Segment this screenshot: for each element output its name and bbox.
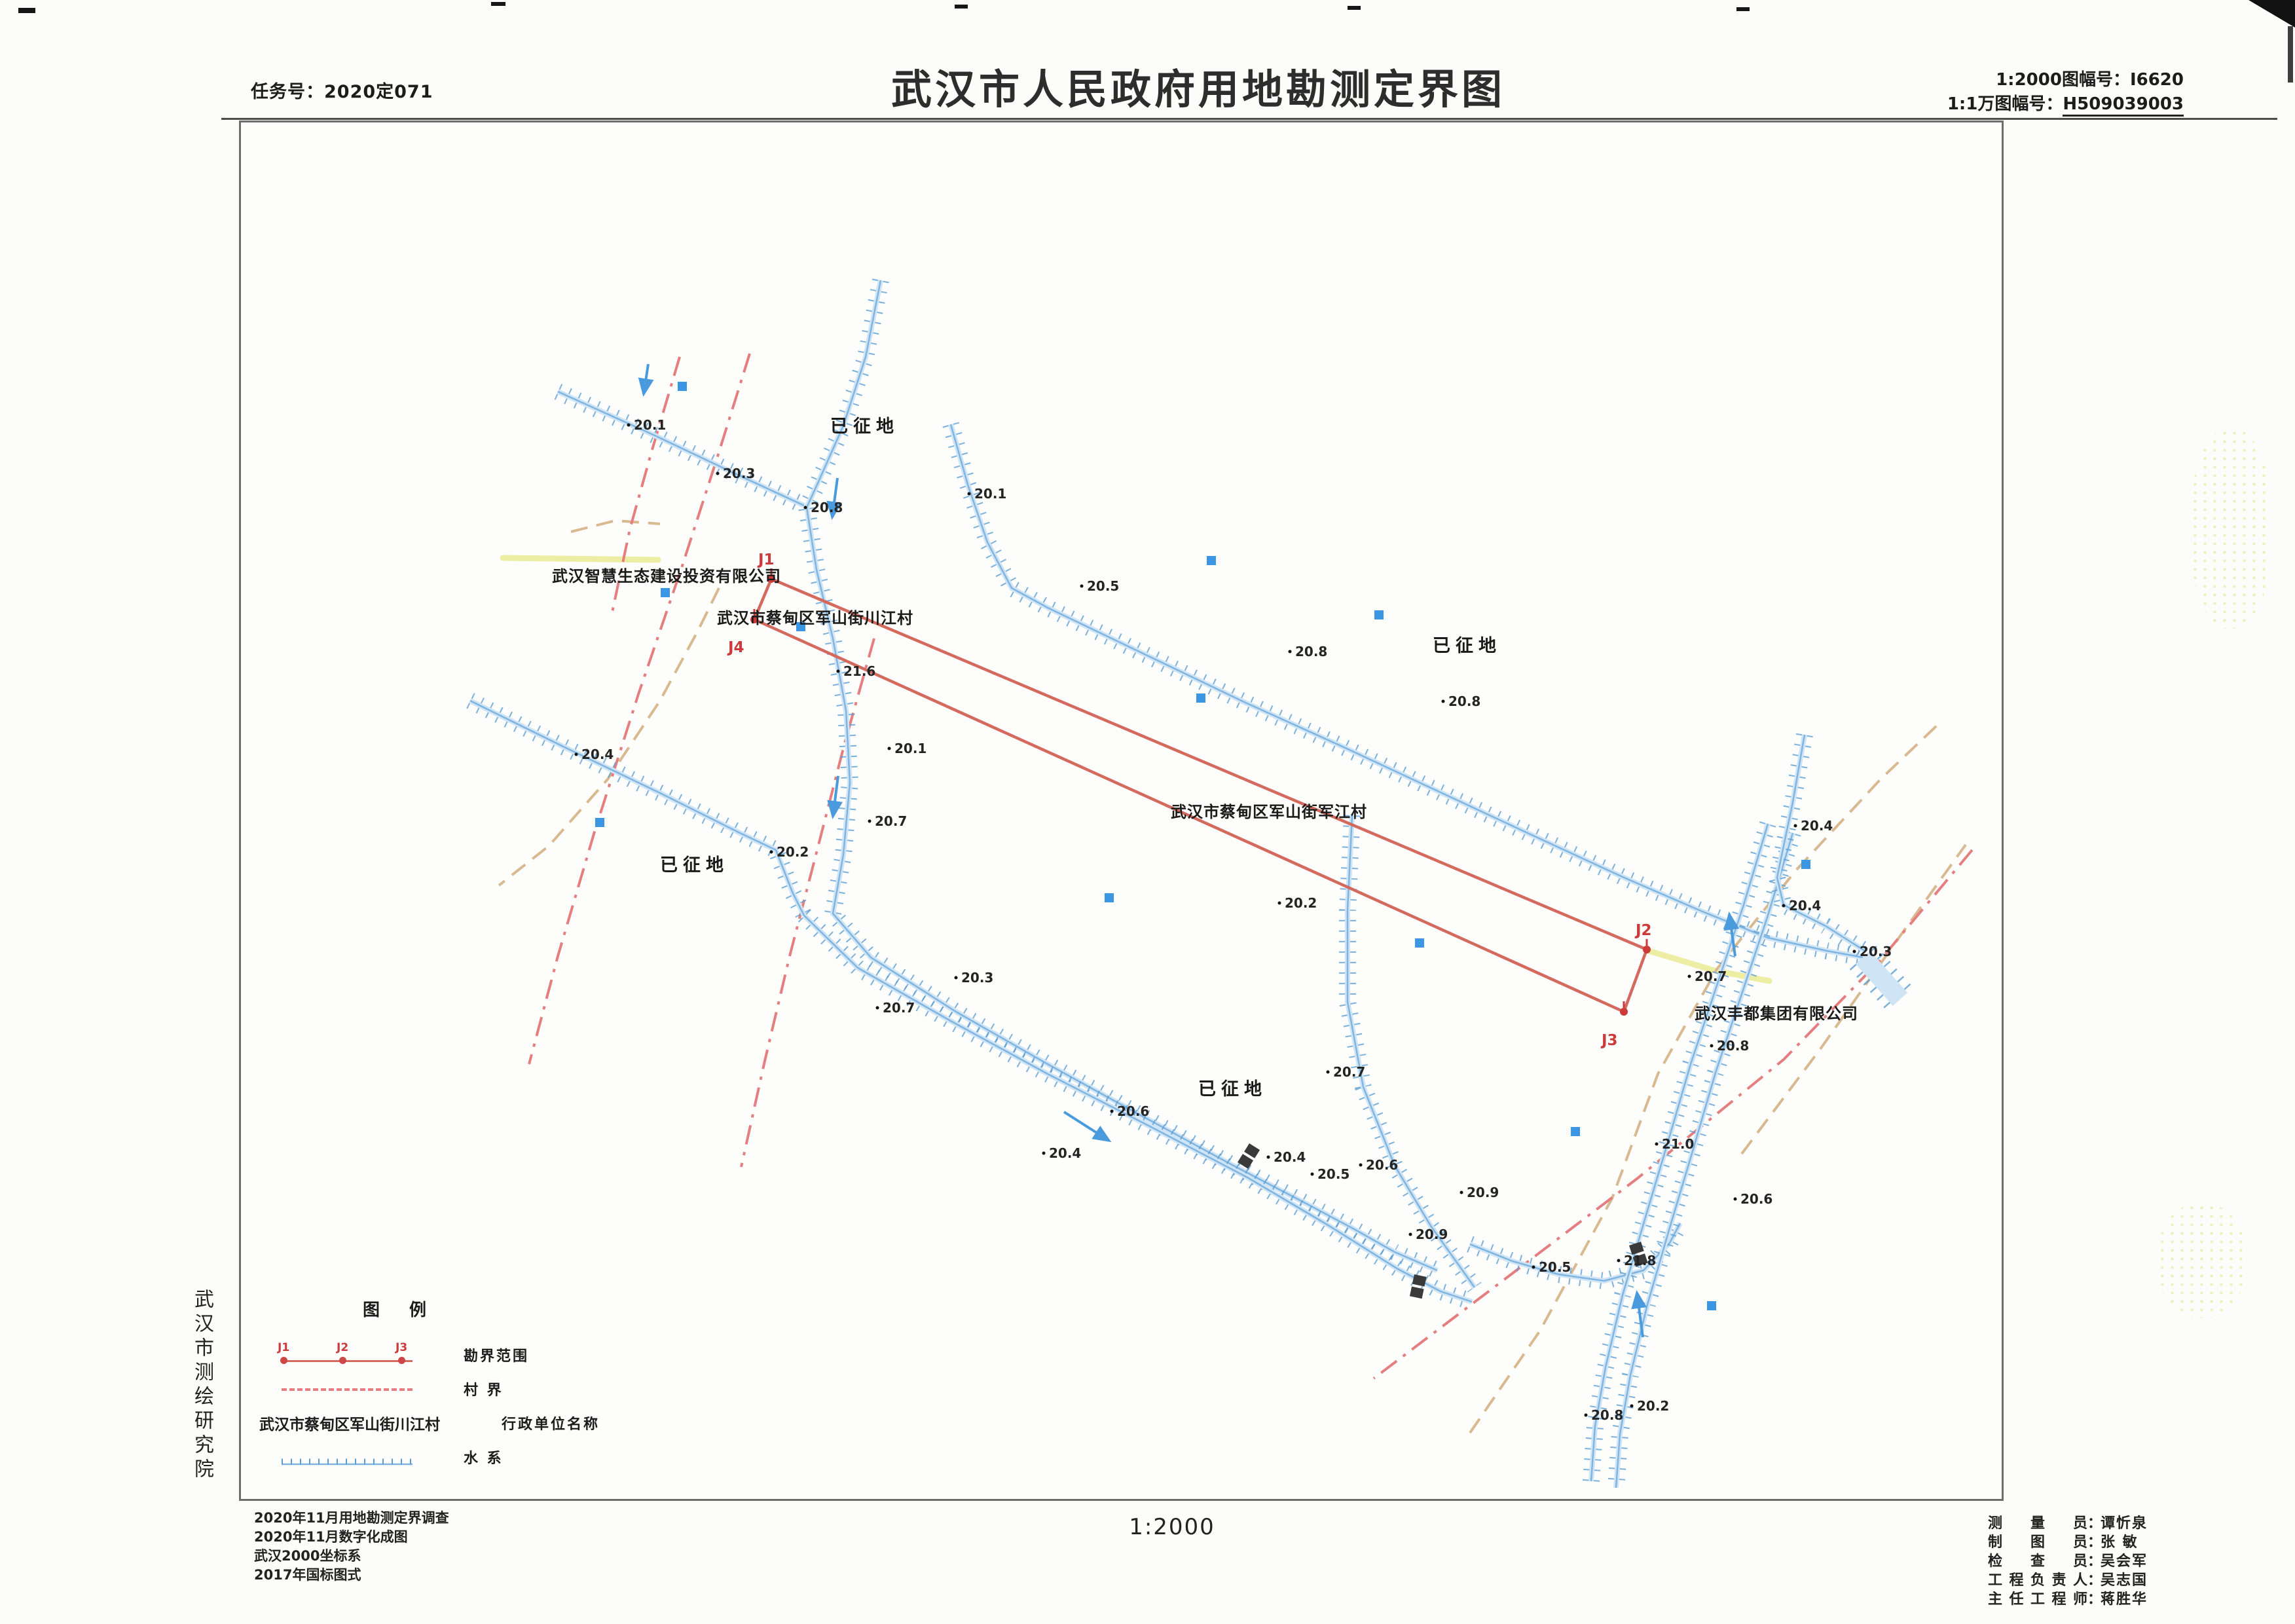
spot-elevation-dot [1460, 1191, 1463, 1194]
note-line: 武汉2000坐标系 [254, 1547, 449, 1566]
spot-elevation-label: 20.3 [961, 970, 993, 986]
spot-elevation-dot [1042, 1152, 1046, 1155]
spot-elevation-label: 20.5 [1087, 578, 1119, 594]
water-channel-line [1348, 815, 1475, 1287]
boundary-point-label: J1 [757, 551, 775, 568]
spot-elevation-label: 20.5 [1317, 1166, 1349, 1182]
spot-elevation-label: 20.2 [777, 844, 809, 860]
water-channel-ticks [951, 424, 1863, 957]
pond-square-icon [595, 818, 604, 827]
water-channel-core [807, 280, 1437, 1270]
spot-elevation-label: 20.4 [1049, 1145, 1081, 1161]
spot-elevation-label: 20.8 [1295, 644, 1327, 659]
survey-map-sheet: 任务号：2020定071 武汉市人民政府用地勘测定界图 1:2000图幅号：I6… [0, 0, 2295, 1624]
spot-elevation-dot [1359, 1164, 1363, 1167]
path-dashed-line [571, 521, 660, 532]
spot-elevation-label: 20.9 [1416, 1227, 1448, 1242]
spot-elevation-dot [1655, 1143, 1659, 1146]
legend-title: 图 例 [363, 1297, 600, 1321]
pond-square-icon [1707, 1301, 1716, 1310]
pond-square-icon [1415, 938, 1424, 948]
spot-elevation-label: 20.6 [1117, 1103, 1149, 1119]
spot-elevation-dot [1409, 1233, 1412, 1236]
pond-square-icon [1196, 693, 1205, 703]
spot-elevation-label: 20.1 [894, 741, 927, 756]
production-notes: 2020年11月用地勘测定界调查 2020年11月数字化成图 武汉2000坐标系… [254, 1509, 449, 1585]
pond-square-icon [1105, 893, 1114, 902]
spot-elevation-dot [1734, 1198, 1737, 1201]
spot-elevation-label: 21.8 [1624, 1253, 1656, 1268]
map-scale: 1:2000 [1129, 1514, 1215, 1540]
spot-elevation-dot [804, 506, 807, 509]
note-line: 2020年11月用地勘测定界调查 [254, 1509, 449, 1528]
spot-elevation-dot [1782, 904, 1786, 908]
survey-line-sample: J1 J2 J3 [259, 1340, 423, 1370]
spot-elevation-dot [1688, 975, 1691, 978]
spot-elevation-label: 20.5 [1539, 1259, 1571, 1275]
spot-elevation-dot [1327, 1071, 1330, 1074]
spot-elevation-label: 20.2 [1285, 895, 1317, 911]
spot-elevation-label: 20.7 [1695, 969, 1727, 984]
area-label: 已征地 [660, 855, 729, 876]
personnel-row: 检查员：吴会军 [1988, 1552, 2148, 1571]
boundary-point [1620, 1008, 1628, 1016]
spot-elevation-dot [1267, 1156, 1270, 1159]
spot-elevation-dot [770, 851, 773, 854]
spot-elevation-dot [1080, 585, 1084, 588]
name-label: 武汉市蔡甸区军山街川江村 [717, 609, 913, 627]
spot-elevation-dot [627, 424, 631, 427]
spot-elevation-label: 20.8 [1717, 1038, 1749, 1054]
pond-square-icon [1207, 556, 1216, 565]
legend-label-water: 水 系 [464, 1447, 504, 1467]
spot-elevation-label: 20.6 [1740, 1191, 1772, 1207]
personnel-row: 测量员：谭忻泉 [1988, 1514, 2148, 1533]
legend-row-admin: 武汉市蔡甸区军山街川江村 行政单位名称 [259, 1406, 600, 1440]
spot-elevation-dot [1794, 824, 1797, 828]
flow-arrow-icon [644, 364, 648, 394]
name-label: 武汉丰都集团有限公司 [1695, 1005, 1858, 1023]
agency-name: 武汉市测绘研究院 [187, 1289, 216, 1483]
water-channel-ticks [807, 280, 1437, 1270]
spot-elevation-label: 20.2 [1637, 1398, 1669, 1414]
spot-elevation-dot [888, 747, 891, 750]
spot-elevation-dot [1630, 1405, 1634, 1408]
path-dashed-line [499, 588, 719, 885]
personnel-row: 工程负责人：吴志国 [1988, 1571, 2148, 1590]
spot-elevation-label: 21.6 [843, 663, 875, 679]
spot-elevation-label: 20.4 [1274, 1149, 1306, 1165]
spot-elevation-label: 20.1 [974, 486, 1006, 502]
spot-elevation-label: 20.3 [723, 466, 755, 481]
legend: 图 例 J1 J2 J3 勘界范围 村 界 武汉市蔡甸区军山街川江村 行政单位名… [259, 1297, 600, 1474]
note-line: 2020年11月数字化成图 [254, 1528, 449, 1547]
spot-elevation-dot [1853, 950, 1856, 953]
spot-elevation-label: 21.0 [1662, 1136, 1694, 1152]
survey-line-icon [282, 1360, 413, 1362]
legend-j2-label: J2 [337, 1341, 348, 1354]
water-line-sample [259, 1442, 423, 1472]
survey-boundary-line [771, 579, 1647, 950]
spot-elevation-dot [1532, 1266, 1535, 1269]
boundary-point [1643, 946, 1651, 953]
spot-elevation-dot [876, 1006, 879, 1010]
spot-elevation-dot [868, 820, 872, 823]
pond-square-icon [661, 588, 670, 597]
water-line-icon [282, 1456, 413, 1468]
personnel-block: 测量员：谭忻泉 制图员：张 敏 检查员：吴会军 工程负责人：吴志国 主任工程师：… [1988, 1514, 2148, 1609]
admin-unit-sample: 武汉市蔡甸区军山街川江村 [259, 1412, 494, 1434]
flow-arrow-icon [833, 776, 838, 817]
village-boundary-icon [282, 1388, 413, 1391]
legend-label-village: 村 界 [464, 1378, 504, 1399]
spot-elevation-label: 20.4 [581, 747, 614, 762]
name-label: 武汉市蔡甸区军山街军江村 [1171, 803, 1367, 821]
spot-elevation-label: 20.4 [1801, 818, 1833, 834]
drain-core [1863, 957, 1900, 999]
spot-elevation-dot [575, 753, 578, 756]
spot-elevation-label: 20.1 [634, 417, 666, 433]
legend-row-survey: J1 J2 J3 勘界范围 [259, 1338, 600, 1372]
village-boundary-line [529, 354, 750, 1064]
spot-elevation-dot [1111, 1110, 1114, 1113]
water-channel-line [951, 424, 1863, 957]
spot-elevation-label: 20.6 [1366, 1157, 1398, 1173]
water-channel-core [1348, 815, 1475, 1287]
legend-label-admin: 行政单位名称 [502, 1412, 600, 1433]
boundary-point-label: J3 [1600, 1032, 1618, 1049]
note-line: 2017年国标图式 [254, 1566, 449, 1585]
village-boundary-sample [259, 1374, 423, 1404]
survey-point-icon [339, 1357, 346, 1364]
spot-elevation-label: 20.7 [883, 1000, 915, 1016]
area-label: 已征地 [830, 416, 899, 437]
survey-point-icon [280, 1357, 287, 1364]
building-icon [1244, 1143, 1260, 1158]
spot-elevation-dot [716, 472, 720, 475]
spot-elevation-label: 20.9 [1467, 1185, 1499, 1200]
spot-elevation-dot [837, 670, 840, 673]
pond-square-icon [1571, 1127, 1580, 1136]
legend-row-village: 村 界 [259, 1372, 600, 1406]
path-dashed-line [1470, 726, 1937, 1433]
spot-elevation-label: 20.7 [1333, 1064, 1365, 1080]
spot-elevation-label: 20.8 [811, 500, 843, 515]
legend-j3-label: J3 [395, 1341, 407, 1354]
pond-square-icon [678, 382, 687, 391]
spot-elevation-label: 20.8 [1591, 1407, 1623, 1423]
water-channel-ticks [1348, 815, 1475, 1287]
spot-elevation-label: 20.3 [1860, 944, 1892, 959]
spot-elevation-label: 20.8 [1448, 693, 1480, 709]
building-icon [1412, 1274, 1427, 1287]
spot-elevation-dot [1617, 1259, 1621, 1263]
survey-point-icon [398, 1357, 405, 1364]
water-channel-line [558, 392, 804, 506]
personnel-row: 主任工程师：蒋胜华 [1988, 1590, 2148, 1609]
water-channel-core [951, 424, 1863, 957]
spot-elevation-dot [1710, 1044, 1714, 1048]
spot-elevation-label: 20.4 [1789, 898, 1821, 913]
spot-elevation-dot [968, 492, 971, 496]
area-label: 已征地 [1198, 1079, 1267, 1099]
spot-elevation-dot [1585, 1414, 1588, 1417]
pond-square-icon [1801, 860, 1810, 869]
name-label: 武汉智慧生态建设投资有限公司 [552, 567, 781, 585]
spot-elevation-dot [955, 976, 958, 980]
water-channel-line [807, 280, 1437, 1270]
road-yellow-line [503, 558, 658, 560]
spot-elevation-dot [1442, 700, 1445, 703]
legend-label-survey: 勘界范围 [464, 1344, 529, 1365]
pond-square-icon [1374, 610, 1384, 619]
personnel-row: 制图员：张 敏 [1988, 1533, 2148, 1552]
survey-boundary-line [1624, 950, 1647, 1012]
spot-elevation-dot [1278, 902, 1281, 905]
boundary-point-label: J2 [1634, 922, 1652, 939]
legend-row-water: 水 系 [259, 1440, 600, 1474]
spot-elevation-dot [1289, 650, 1292, 654]
spot-elevation-dot [1311, 1173, 1314, 1176]
spot-elevation-label: 20.7 [875, 813, 907, 829]
area-label: 已征地 [1433, 636, 1501, 656]
village-boundary-line [741, 638, 874, 1167]
legend-j1-label: J1 [278, 1341, 289, 1354]
flow-arrow-icon [1064, 1112, 1109, 1141]
boundary-point-label: J4 [727, 639, 744, 656]
